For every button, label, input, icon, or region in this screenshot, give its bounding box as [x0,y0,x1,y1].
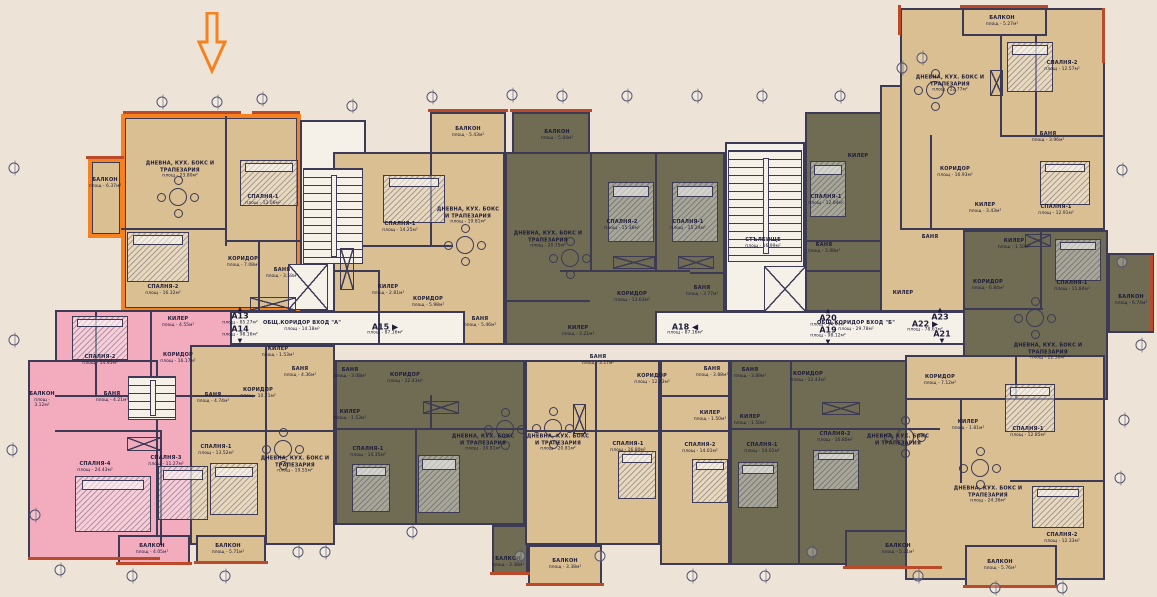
chair [947,86,956,95]
red-accent [428,109,508,112]
wall-segment [595,430,597,543]
red-accent [28,557,160,560]
chair [501,441,510,450]
axis-marker [557,91,568,102]
chair [931,102,940,111]
bed-pillow [1060,242,1097,250]
bed-icon [1032,486,1084,528]
balcony-a23 [962,8,1047,36]
wall-segment [660,395,730,397]
table-top [169,188,187,206]
chair [262,445,271,454]
wall-segment [1000,135,1105,137]
bed-pillow [163,470,203,480]
chair [914,86,923,95]
unit-tag-a21: A21▼ [933,331,950,346]
wall-segment [415,430,417,525]
bed-icon [1007,42,1053,92]
red-accent [963,585,1058,588]
wall-segment [1010,480,1105,482]
corridor-entrance-a [230,311,465,345]
dining-table-icon [1018,301,1052,335]
bed-icon [813,450,859,490]
balcony-olive-sw [492,525,528,575]
unit-tag-a15: A15 ▶площ - 87.16м² [367,323,402,336]
axis-marker [835,91,846,102]
chair [976,480,985,489]
wall-segment [225,116,227,246]
bed-pillow [818,453,855,461]
red-accent [252,111,300,114]
axis-marker [692,91,703,102]
axis-marker [347,101,358,112]
balcony-a22 [1108,253,1154,333]
axis-marker [212,97,223,108]
bed-pillow [677,186,714,198]
axis-marker [917,53,928,64]
dining-table-icon [918,73,952,107]
axis-marker [9,335,20,346]
chair [190,193,199,202]
chair [549,407,558,416]
wall-segment [590,152,592,272]
tag-arrow-icon: ▼ [238,338,243,344]
wardrobe-icon [990,70,1003,96]
axis-marker [9,163,20,174]
bed-pillow [133,235,183,245]
axis-marker [407,527,418,538]
table-top [561,249,579,267]
bed-icon [418,455,460,513]
chair [484,425,493,434]
chair [549,254,558,263]
table-top [896,428,914,446]
dining-table-icon [888,420,922,454]
wall-segment [805,270,882,272]
chair [279,428,288,437]
bed-icon [383,175,445,223]
balcony-pink-bottom [118,535,190,565]
wardrobe-icon [423,401,459,414]
tag-arrow-icon: ▼ [940,339,945,345]
balcony-se [965,545,1057,587]
chair [1047,314,1056,323]
wall-segment [805,240,882,242]
bed-pillow [1012,45,1049,55]
red-accent [194,561,268,564]
red-accent [510,109,592,112]
wall-segment [227,240,301,242]
axis-marker [30,510,41,521]
balcony-a15 [430,112,506,154]
wall-segment [121,228,227,230]
chair [959,464,968,473]
axis-marker [990,583,1001,594]
bed-icon [72,316,128,360]
chair [279,461,288,470]
elevator-icon [764,266,806,312]
wardrobe-icon [573,404,586,434]
chair [901,449,910,458]
bed-pillow [82,480,144,491]
table-top [971,459,989,477]
red-accent [1102,8,1105,63]
axis-marker [7,445,18,456]
unit-area: площ - 87.16м² [367,332,402,337]
chair [444,241,453,250]
bed-pillow [696,462,725,470]
chair [884,433,893,442]
red-accent [960,5,1048,8]
dining-table-icon [266,432,300,466]
axis-marker [127,571,138,582]
stairs-icon [303,168,363,264]
chair [901,416,910,425]
chair [461,257,470,266]
axis-marker [507,90,518,101]
unit-tag-a13: ▲A13площ - 85.27м² [222,306,257,325]
chair [174,176,183,185]
red-accent [86,156,124,159]
wall-segment [190,430,335,432]
red-accent [116,562,192,565]
chair [1031,330,1040,339]
bed-pillow [1010,387,1050,396]
chair [174,209,183,218]
wall-segment [798,430,800,563]
axis-marker [807,547,818,558]
dining-table-icon [161,180,195,214]
bed-pillow [215,467,254,477]
apartment-a13 [121,114,301,312]
bed-pillow [622,454,652,463]
stairs-icon [128,376,176,420]
chair [532,424,541,433]
balcony-a14 [196,535,266,563]
wardrobe-icon [1025,234,1051,247]
axis-marker [157,97,168,108]
axis-marker [1117,257,1128,268]
chair [295,445,304,454]
chair [917,433,926,442]
wardrobe-icon [127,437,161,451]
wall-segment [660,430,730,432]
chair [1031,297,1040,306]
bed-icon [210,463,258,515]
chair [582,254,591,263]
chair [477,241,486,250]
bed-pillow [1045,164,1085,172]
red-accent [490,572,530,575]
chair [461,224,470,233]
wall-segment [505,300,590,302]
chair [157,193,166,202]
bed-icon [608,182,654,242]
tag-arrow-icon: ▼ [826,339,831,345]
unit-tag-a18: A18 ◀площ - 87.16м² [667,323,702,336]
dining-table-icon [448,228,482,262]
axis-marker [320,547,331,558]
axis-marker [622,91,633,102]
chair [566,237,575,246]
bed-icon [75,476,151,532]
bed-icon [127,232,189,282]
bed-icon [692,459,728,503]
wall-segment [595,360,597,430]
highlight-arrow-icon [192,12,238,74]
bed-icon [810,161,846,217]
axis-marker [427,92,438,103]
axis-marker [687,571,698,582]
bed-pillow [814,165,843,176]
bed-icon [1005,384,1055,432]
table-top [274,440,292,458]
wall-segment [690,272,725,274]
axis-marker [257,94,268,105]
axis-marker [293,547,304,558]
dining-table-icon [553,241,587,275]
dining-table-icon [488,412,522,446]
table-top [926,81,944,99]
bed-icon [352,464,390,512]
red-accent [1150,255,1153,331]
bed-icon [1055,239,1101,281]
chair [517,425,526,434]
axis-marker [595,551,606,562]
wardrobe-icon [822,402,860,415]
axis-marker [1136,340,1147,351]
dining-table-icon [963,451,997,485]
chair [565,424,574,433]
table-top [1026,309,1044,327]
chair [501,408,510,417]
chair [566,270,575,279]
red-accent [526,583,604,586]
table-top [456,236,474,254]
axis-marker [757,91,768,102]
bed-pillow [742,465,774,474]
unit-tag-a19: A19площ - 98.12м²▼ [810,326,845,345]
axis-marker [515,551,526,562]
balcony-tan-s [528,545,602,585]
red-accent [898,5,901,35]
wardrobe-icon [678,256,714,269]
axis-marker [55,565,66,576]
bed-icon [1040,161,1090,205]
apartment-a14 [190,345,335,545]
axis-marker [1057,583,1068,594]
bed-pillow [613,186,650,198]
wall-segment [265,345,267,430]
chair [992,464,1001,473]
red-accent [123,111,241,114]
unit-tag-a14: A14площ - 98.16м²▼ [222,325,257,344]
table-top [544,419,562,437]
balcony-a13 [88,158,124,238]
bed-pillow [1037,489,1079,497]
wardrobe-icon [613,256,655,269]
wall-segment [930,135,932,230]
axis-marker [1117,165,1128,176]
axis-marker [760,571,771,582]
bed-pillow [77,319,122,327]
bed-pillow [389,178,439,187]
axis-marker [913,571,924,582]
wall-segment [655,152,657,272]
table-top [496,420,514,438]
axis-marker [1119,415,1130,426]
bed-icon [158,466,208,520]
axis-marker [1115,473,1126,484]
chair [931,69,940,78]
chair [976,447,985,456]
bed-icon [738,462,778,508]
stairs-icon [728,150,802,262]
unit-area: площ - 87.16м² [667,332,702,337]
axis-marker [220,571,231,582]
bed-pillow [356,467,386,476]
dining-table-icon [536,411,570,445]
bed-icon [672,182,718,242]
bed-icon [618,451,656,499]
chair [1014,314,1023,323]
floor-plan-canvas: БАЛКОНплощ - 6.37м²ДНЕВНА, КУХ. БОКС И Т… [0,0,1157,597]
axis-marker [897,63,908,74]
red-accent [843,566,942,569]
bed-icon [240,160,298,206]
balcony-a18 [512,112,590,154]
bed-pillow [245,163,292,172]
wall-segment [55,430,160,432]
bed-pillow [422,459,456,470]
wardrobe-icon [340,248,354,290]
wall-segment [790,360,792,430]
chair [549,440,558,449]
